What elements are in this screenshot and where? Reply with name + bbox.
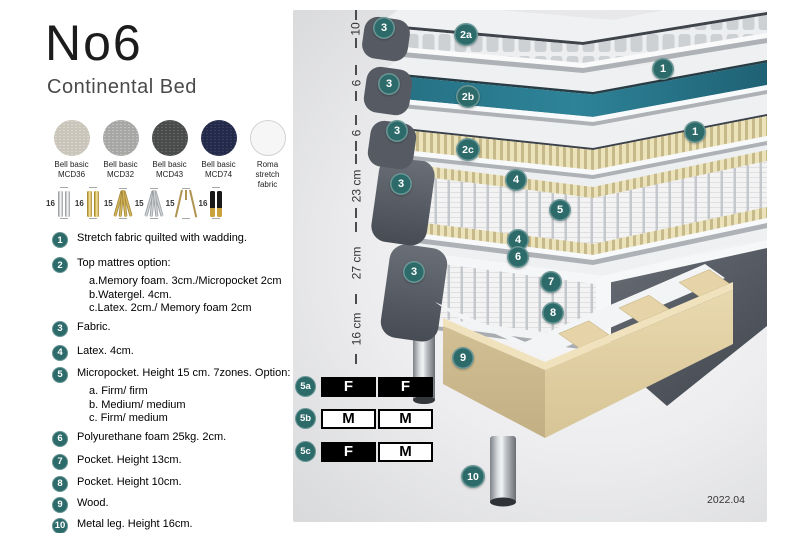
dimension-label: 10 xyxy=(343,10,369,48)
fabric-swatch-image xyxy=(201,120,237,156)
dimension-label: 16 cm xyxy=(343,294,369,364)
leg-option-cylinder-silver[interactable]: 16 xyxy=(46,186,71,220)
dimension-label: 6 xyxy=(343,65,369,101)
list-item: 5 Micropocket. Height 15 cm. 7zones. Opt… xyxy=(52,367,292,425)
list-item: 4 Latex. 4cm. xyxy=(52,345,292,361)
leg-cylinder-silver-icon xyxy=(57,189,71,217)
firmness-row-5c: 5c F M xyxy=(295,441,433,462)
list-item: 8 Pocket. Height 10cm. xyxy=(52,476,292,492)
leg-hairpin-icon xyxy=(177,190,195,217)
leg-twisted-brass-icon xyxy=(115,190,131,217)
firmness-cell: M xyxy=(321,409,376,429)
version-label: 2022.04 xyxy=(707,494,745,506)
feature-number-badge: 7 xyxy=(52,454,68,470)
callout-5: 5 xyxy=(549,199,571,221)
callout-3: 3 xyxy=(386,120,408,142)
firmness-row-badge: 5c xyxy=(295,441,316,462)
feature-list: 1 Stretch fabric quilted with wadding. 2… xyxy=(52,232,292,533)
feature-number-badge: 10 xyxy=(52,518,68,533)
fabric-swatch-image xyxy=(250,120,286,156)
product-sheet: No6 Continental Bed Bell basicMCD36 Bell… xyxy=(0,0,800,533)
fabric-swatch-image xyxy=(152,120,188,156)
list-item: 9 Wood. xyxy=(52,497,292,513)
callout-6: 6 xyxy=(507,246,529,268)
page-title: No6 xyxy=(45,14,143,72)
bed-diagram-panel: 10 6 6 23 cm 27 cm 16 cm 3 2a 1 3 2b 3 2… xyxy=(293,10,767,522)
feature-number-badge: 8 xyxy=(52,476,68,492)
firmness-cell: F xyxy=(378,377,433,397)
metal-leg xyxy=(490,436,516,507)
leg-cylinder-brass-icon xyxy=(86,189,100,217)
callout-7: 7 xyxy=(540,271,562,293)
dimension-label: 6 xyxy=(343,115,369,151)
leg-option-twisted-brass[interactable]: 15 xyxy=(104,186,131,220)
callout-10: 10 xyxy=(461,465,485,488)
firmness-cell: M xyxy=(378,409,433,429)
list-item: 10 Metal leg. Height 16cm. xyxy=(52,518,292,533)
firmness-cell: M xyxy=(378,442,433,462)
firmness-row-badge: 5a xyxy=(295,376,316,397)
leg-options: 16 16 15 15 15 xyxy=(46,186,223,220)
callout-3: 3 xyxy=(373,17,395,39)
fabric-swatch[interactable]: Bell basicMCD36 xyxy=(50,120,93,190)
feature-number-badge: 1 xyxy=(52,232,68,248)
feature-number-badge: 2 xyxy=(52,257,68,273)
callout-9: 9 xyxy=(452,347,474,369)
feature-number-badge: 9 xyxy=(52,497,68,513)
list-item: 3 Fabric. xyxy=(52,321,292,337)
fabric-swatch-image xyxy=(103,120,139,156)
leg-black-brass-icon xyxy=(209,189,223,217)
callout-2c: 2c xyxy=(456,138,480,161)
fabric-swatch[interactable]: Romastretch fabric xyxy=(246,120,289,190)
fabric-swatch[interactable]: Bell basicMCD32 xyxy=(99,120,142,190)
firmness-cell: F xyxy=(321,442,376,462)
fabric-swatches: Bell basicMCD36 Bell basicMCD32 Bell bas… xyxy=(50,120,289,190)
callout-2a: 2a xyxy=(454,23,478,46)
leg-option-black-brass[interactable]: 16 xyxy=(199,186,224,220)
callout-3: 3 xyxy=(378,73,400,95)
feature-number-badge: 5 xyxy=(52,367,68,383)
callout-4: 4 xyxy=(505,169,527,191)
callout-3: 3 xyxy=(403,261,425,283)
fabric-swatch-image xyxy=(54,120,90,156)
leg-option-twisted-silver[interactable]: 15 xyxy=(135,186,162,220)
dimension-label: 23 cm xyxy=(343,154,369,218)
list-item: 7 Pocket. Height 13cm. xyxy=(52,454,292,470)
leg-option-cylinder-brass[interactable]: 16 xyxy=(75,186,100,220)
callout-3: 3 xyxy=(390,173,412,195)
page-subtitle: Continental Bed xyxy=(47,76,197,99)
firmness-row-5b: 5b M M xyxy=(295,408,433,429)
firmness-cell: F xyxy=(321,377,376,397)
callout-1: 1 xyxy=(652,58,674,80)
list-item: 2 Top mattres option: a.Memory foam. 3cm… xyxy=(52,257,292,315)
callout-2b: 2b xyxy=(456,85,480,108)
leg-option-hairpin[interactable]: 15 xyxy=(166,186,195,220)
feature-number-badge: 4 xyxy=(52,345,68,361)
list-item: 1 Stretch fabric quilted with wadding. xyxy=(52,232,292,248)
firmness-row-5a: 5a F F xyxy=(295,376,433,397)
callout-1: 1 xyxy=(684,121,706,143)
list-item: 6 Polyurethane foam 25kg. 2cm. xyxy=(52,431,292,447)
firmness-row-badge: 5b xyxy=(295,408,316,429)
feature-number-badge: 6 xyxy=(52,431,68,447)
fabric-swatch[interactable]: Bell basicMCD74 xyxy=(197,120,240,190)
callout-8: 8 xyxy=(542,302,564,324)
fabric-swatch[interactable]: Bell basicMCD43 xyxy=(148,120,191,190)
leg-twisted-silver-icon xyxy=(146,190,162,217)
dimension-label: 27 cm xyxy=(343,222,369,304)
feature-number-badge: 3 xyxy=(52,321,68,337)
